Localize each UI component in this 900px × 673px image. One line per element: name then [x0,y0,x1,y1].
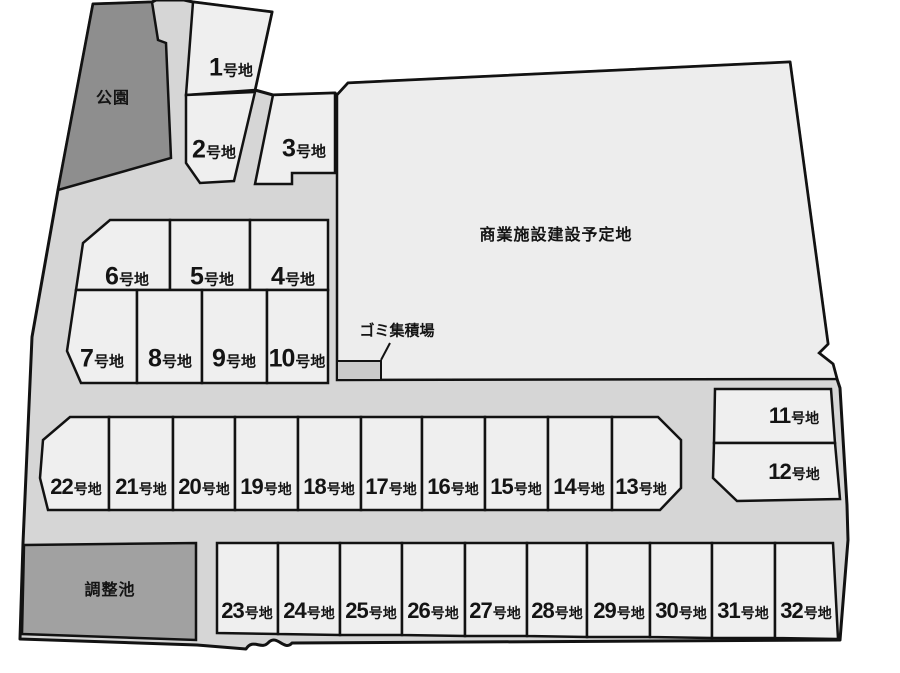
lot-shape-32 [775,543,838,639]
site-plan-canvas [0,0,900,673]
lot-label-16: 16号地 [427,476,478,498]
commercial-label: 商業施設建設予定地 [479,228,632,244]
lot-label-15: 15号地 [490,476,541,498]
lot-label-31: 31号地 [717,600,768,622]
lot-label-14: 14号地 [553,476,604,498]
lot-label-18: 18号地 [303,476,354,498]
lot-label-21: 21号地 [115,476,166,498]
lot-label-7: 7号地 [80,347,124,372]
lot-label-8: 8号地 [148,347,192,372]
lot-label-20: 20号地 [178,476,229,498]
lot-shape-31 [712,543,775,638]
lot-label-30: 30号地 [655,600,706,622]
garbage-area [337,361,381,380]
lot-label-12: 12号地 [768,461,819,483]
lot-label-1: 1号地 [209,56,253,81]
lot-label-17: 17号地 [365,476,416,498]
lot-label-29: 29号地 [593,600,644,622]
garbage-label: ゴミ集積場 [359,324,434,339]
lot-label-6: 6号地 [105,265,149,290]
lot-label-28: 28号地 [531,600,582,622]
pond-label: 調整池 [84,583,135,599]
lot-label-10: 10号地 [269,347,326,372]
lot-label-24: 24号地 [283,600,334,622]
lot-label-32: 32号地 [780,600,831,622]
lot-label-19: 19号地 [240,476,291,498]
site-plan-diagram: 公園 商業施設建設予定地 ゴミ集積場 調整池 1号地 2号地 3号地 4号地 5… [0,0,900,673]
lot-label-26: 26号地 [407,600,458,622]
lot-shape-1 [186,2,272,95]
lot-label-2: 2号地 [192,138,236,163]
lot-label-13: 13号地 [615,476,666,498]
lot-shape-30 [650,543,712,638]
lot-label-3: 3号地 [282,137,326,162]
lot-label-27: 27号地 [469,600,520,622]
lot-label-23: 23号地 [221,600,272,622]
lot-label-4: 4号地 [271,265,315,290]
lot-label-5: 5号地 [190,265,234,290]
lot-label-11: 11号地 [769,405,819,427]
lot-label-22: 22号地 [50,476,101,498]
lot-label-9: 9号地 [212,347,256,372]
lot-label-25: 25号地 [345,600,396,622]
park-label: 公園 [96,91,130,107]
